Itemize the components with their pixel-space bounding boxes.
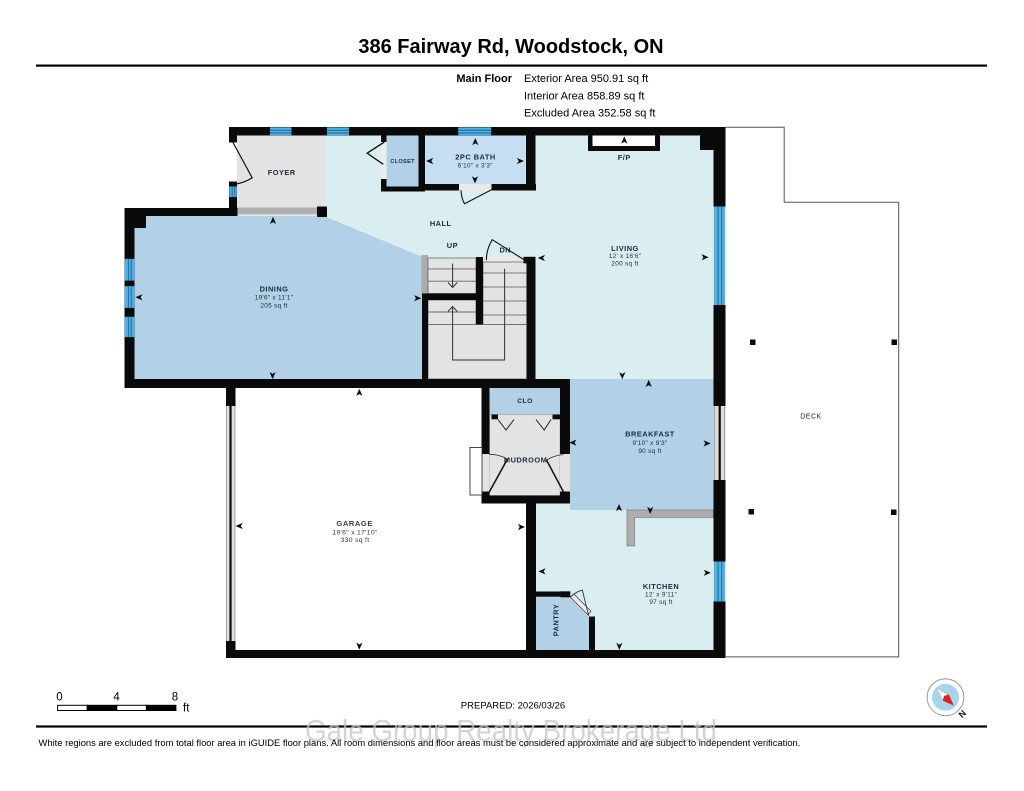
svg-text:330 sq ft: 330 sq ft [341, 537, 370, 544]
svg-text:PANTRY: PANTRY [552, 604, 561, 637]
svg-text:MUDROOM: MUDROOM [504, 455, 547, 464]
svg-text:2PC BATH: 2PC BATH [455, 152, 495, 161]
svg-text:CLO: CLO [517, 398, 533, 405]
svg-text:White regions are excluded fro: White regions are excluded from total fl… [39, 737, 801, 748]
svg-text:200 sq ft: 200 sq ft [611, 261, 638, 268]
svg-text:9'10" x 9'3": 9'10" x 9'3" [632, 440, 667, 447]
svg-text:0: 0 [56, 692, 62, 704]
svg-text:DINING: DINING [260, 285, 289, 294]
svg-text:205 sq ft: 205 sq ft [260, 303, 287, 310]
svg-text:LIVING: LIVING [611, 244, 639, 253]
svg-text:BREAKFAST: BREAKFAST [625, 429, 675, 438]
svg-text:PREPARED: 2026/03/26: PREPARED: 2026/03/26 [461, 700, 565, 711]
svg-text:ft: ft [183, 703, 190, 715]
svg-text:12' x 9'11": 12' x 9'11" [645, 591, 677, 598]
svg-text:386 Fairway Rd, Woodstock, ON: 386 Fairway Rd, Woodstock, ON [358, 36, 663, 58]
svg-text:90 sq ft: 90 sq ft [638, 448, 661, 455]
svg-text:HALL: HALL [430, 219, 452, 228]
svg-text:19'6" x 11'1": 19'6" x 11'1" [255, 295, 293, 302]
svg-text:4: 4 [113, 692, 120, 704]
svg-text:DECK: DECK [800, 413, 821, 420]
svg-text:Excluded Area 352.58 sq ft: Excluded Area 352.58 sq ft [524, 108, 655, 120]
svg-text:19'6" x 17'10": 19'6" x 17'10" [332, 530, 378, 537]
svg-text:GARAGE: GARAGE [336, 519, 373, 528]
svg-text:FOYER: FOYER [268, 168, 296, 177]
svg-text:DN: DN [499, 246, 511, 255]
svg-text:F/P: F/P [618, 153, 631, 162]
svg-text:Interior Area 858.89 sq ft: Interior Area 858.89 sq ft [524, 90, 644, 102]
svg-text:Exterior Area 950.91 sq ft: Exterior Area 950.91 sq ft [524, 73, 648, 85]
svg-text:CLOSET: CLOSET [390, 159, 415, 165]
svg-text:97 sq ft: 97 sq ft [649, 599, 672, 606]
svg-text:Main Floor: Main Floor [456, 73, 512, 85]
svg-text:8: 8 [172, 692, 178, 704]
svg-text:6'10" x 3'3": 6'10" x 3'3" [458, 162, 493, 169]
svg-text:12' x 16'6": 12' x 16'6" [609, 253, 642, 260]
svg-text:UP: UP [447, 241, 458, 250]
svg-text:KITCHEN: KITCHEN [643, 582, 679, 591]
